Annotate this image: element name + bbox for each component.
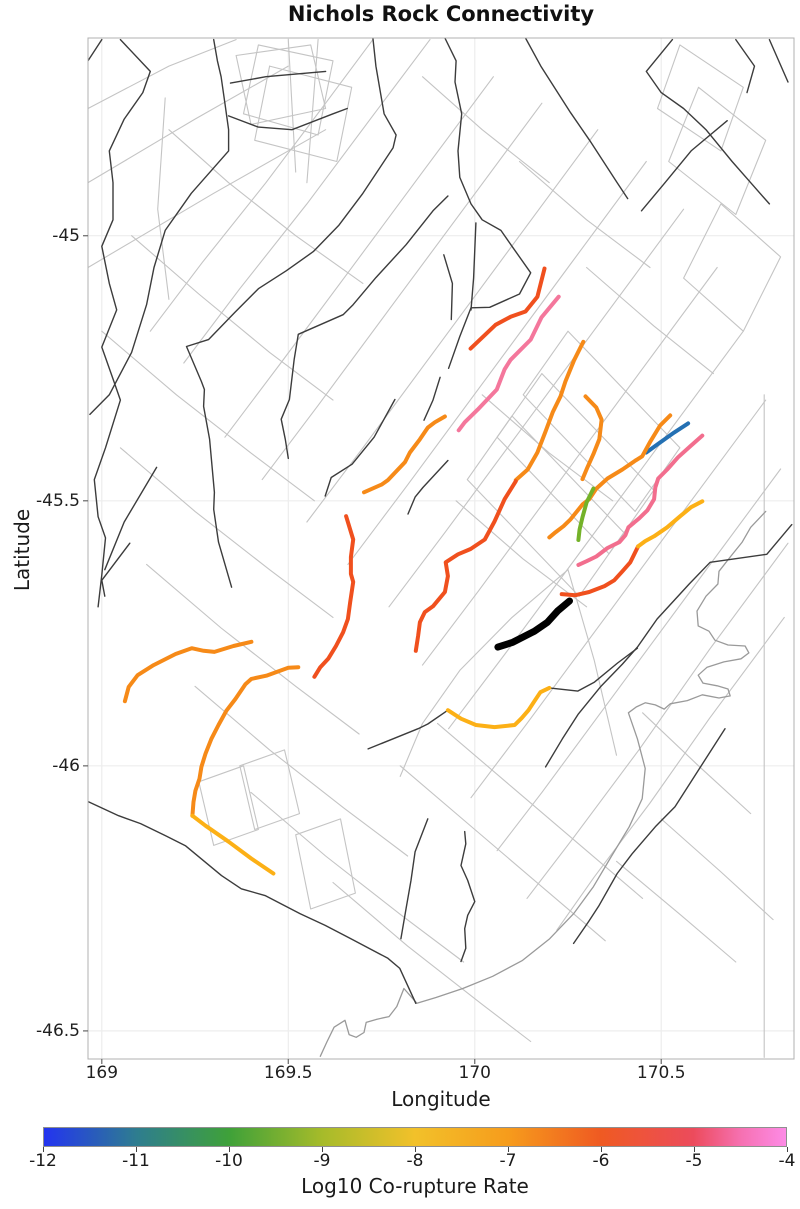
fault-section-line (88, 40, 236, 109)
rupture-west-red-strand (314, 516, 353, 677)
fault-section-line (669, 87, 766, 214)
fault-section-line (423, 268, 718, 666)
colorbar-tick-label: -6 (571, 1151, 631, 1171)
x-tick-label: 170.5 (616, 1063, 706, 1083)
rupture-sw-amber-tail (192, 816, 273, 874)
fault-section-line (617, 861, 736, 962)
source-fault-highlight (498, 601, 570, 647)
rupture-mid-orange-arc (364, 417, 445, 493)
fault-section-line (658, 45, 744, 151)
fault-section-line (684, 204, 781, 331)
major-fault-line (105, 467, 157, 569)
major-fault-line (549, 648, 637, 691)
fault-section-line (307, 130, 598, 522)
fault-section-line (296, 819, 356, 909)
major-fault-line (94, 40, 150, 607)
major-fault-line (574, 729, 725, 944)
rupture-nw-orange-arc (125, 642, 251, 701)
major-fault-line (187, 38, 397, 587)
major-fault-line (102, 543, 130, 596)
y-tick-label: -45 (0, 226, 80, 246)
rupture-south-amber-arc (448, 688, 549, 727)
coastline (320, 511, 765, 1056)
fault-section-line (568, 570, 617, 756)
fault-section-line (520, 162, 651, 268)
colorbar-tick-label: -9 (292, 1151, 352, 1171)
fault-section-line (467, 416, 624, 596)
fault-section-line (471, 400, 766, 798)
fault-section-line (184, 40, 430, 363)
fault-section-line (456, 501, 586, 607)
y-tick-label: -46 (0, 756, 80, 776)
rupture-east-green (578, 489, 593, 540)
fault-section-line (643, 713, 751, 814)
colorbar-tick-label: -4 (757, 1151, 800, 1171)
major-fault-line (88, 40, 102, 61)
fault-section-line (132, 236, 333, 400)
fault-section-line (438, 723, 643, 898)
fault-section-line (169, 130, 363, 284)
major-fault-line (769, 40, 788, 82)
x-tick-label: 170 (430, 1063, 520, 1083)
fault-section-line (400, 766, 605, 941)
fault-section-line (262, 103, 542, 479)
coastline-layer (320, 511, 765, 1056)
fault-section-line (482, 395, 613, 501)
map-layers (88, 38, 794, 1059)
fault-section-line (147, 564, 360, 734)
fault-section-line (423, 77, 550, 183)
y-tick-label: -46.5 (0, 1021, 80, 1041)
fault-section-line (333, 883, 531, 1042)
colorbar-tick-label: -10 (199, 1151, 259, 1171)
major-fault-line (401, 819, 428, 939)
rupture-east-orange-long (549, 415, 670, 537)
colorbar-gradient (43, 1127, 787, 1147)
major-fault-line (424, 377, 440, 420)
fault-section-line (661, 819, 773, 920)
colorbar-tick-label: -8 (385, 1151, 445, 1171)
major-fault-line (408, 461, 448, 515)
major-fault-line (526, 38, 628, 199)
major-faults-layer (88, 38, 792, 1003)
colorbar-tick-label: -11 (106, 1151, 166, 1171)
rupture-central-red (416, 481, 516, 651)
major-fault-line (444, 255, 453, 320)
figure: Nichols Rock Connectivity 169169.5170170… (0, 0, 800, 1209)
rupture-sw-orange-arc (192, 667, 298, 816)
fault-section-line (557, 617, 785, 930)
y-axis-label: Latitude (10, 470, 34, 630)
major-fault-line (368, 710, 448, 749)
co-rupture-layer (125, 269, 702, 874)
fault-section-line (400, 570, 568, 777)
colorbar-tick-label: -12 (13, 1151, 73, 1171)
major-fault-line (461, 832, 475, 962)
colorbar-tick-label: -5 (664, 1151, 724, 1171)
fault-section-line (88, 130, 326, 268)
fault-section-line (158, 98, 169, 299)
x-tick-label: 169.5 (243, 1063, 333, 1083)
fault-section-line (307, 40, 318, 183)
fault-section-line (120, 448, 333, 618)
fault-section-line (348, 162, 646, 565)
map-plot (0, 0, 800, 1209)
colorbar-tick-label: -7 (478, 1151, 538, 1171)
colorbar-label: Log10 Co-rupture Rate (43, 1174, 787, 1198)
x-axis-label: Longitude (88, 1087, 794, 1111)
rupture-central-orange (516, 342, 584, 480)
fault-section-line (527, 543, 788, 898)
x-tick-label: 169 (57, 1063, 147, 1083)
